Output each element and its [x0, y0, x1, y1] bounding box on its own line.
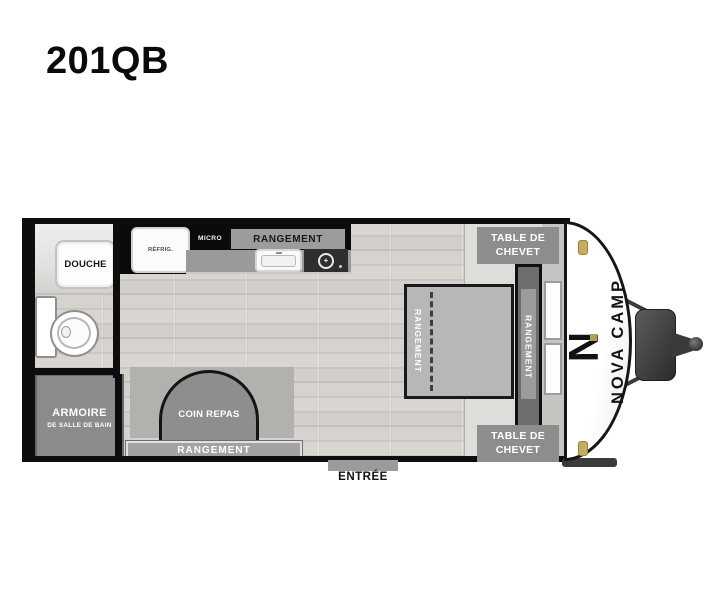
propane-tank-cover-icon: [635, 309, 676, 381]
nightstand-top: TABLE DE CHEVET: [477, 227, 559, 264]
refrigerator-label: RÉFRIG.: [148, 247, 173, 253]
entrance-label: ENTRÉE: [318, 471, 408, 483]
headboard-storage-label: RANGEMENT: [518, 267, 539, 427]
marker-light-top-icon: [578, 240, 588, 255]
headboard-storage: RANGEMENT: [515, 264, 542, 430]
brand-logo-n-icon: N: [558, 322, 608, 372]
brand-logo-gold-accent: [590, 334, 597, 341]
dinette-storage-label: RANGEMENT: [177, 445, 250, 456]
shower-pan-icon: DOUCHE: [55, 240, 116, 289]
nightstand-bottom-label-line2: CHEVET: [496, 444, 540, 458]
nightstand-top-label-line2: CHEVET: [496, 246, 540, 260]
bathroom-wall-vertical: [113, 222, 120, 378]
top-wall: [22, 218, 570, 224]
nightstand-bottom-label-line1: TABLE DE: [491, 430, 545, 444]
toilet-drain-icon: [61, 326, 71, 338]
bed-storage-label: RANGEMENT: [407, 291, 423, 391]
microwave-label: MICRO: [198, 235, 222, 242]
stove-icon: +: [304, 249, 348, 272]
burner-icon: +: [318, 253, 334, 269]
shower-label: DOUCHE: [64, 259, 106, 270]
cabinet-wall-vertical: [115, 374, 122, 460]
rear-wall: [22, 218, 35, 462]
bathroom-cabinet-label-line1: ARMOIRE: [52, 407, 107, 419]
hitch-ball-icon: [689, 337, 703, 351]
nightstand-top-label-line1: TABLE DE: [491, 232, 545, 246]
marker-light-bottom-icon: [578, 441, 588, 456]
bathroom-cabinet: ARMOIRE DE SALLE DE BAIN: [35, 374, 124, 461]
faucet-icon: [276, 252, 282, 254]
sink-icon: [255, 249, 302, 272]
kitchen-storage-label: RANGEMENT: [253, 234, 323, 245]
page-title: 201QB: [46, 40, 169, 83]
bathroom-wall-horizontal: [30, 368, 120, 375]
bed-fold-line: [430, 292, 433, 391]
refrigerator: RÉFRIG.: [131, 227, 190, 273]
entry-step: [328, 460, 398, 471]
stove-knob-icon: [339, 265, 342, 268]
dinette-label: COIN REPAS: [178, 409, 239, 420]
microwave: MICRO: [188, 231, 232, 246]
sink-basin-icon: [261, 255, 296, 267]
brand-name: NOVA CAMP: [609, 241, 627, 441]
bathroom-cabinet-label-line2: DE SALLE DE BAIN: [47, 422, 111, 429]
nightstand-bottom: TABLE DE CHEVET: [477, 425, 559, 462]
floorplan-canvas: 201QB DOUCHE ARMOIRE DE SALLE DE BAIN RÉ…: [0, 0, 716, 600]
